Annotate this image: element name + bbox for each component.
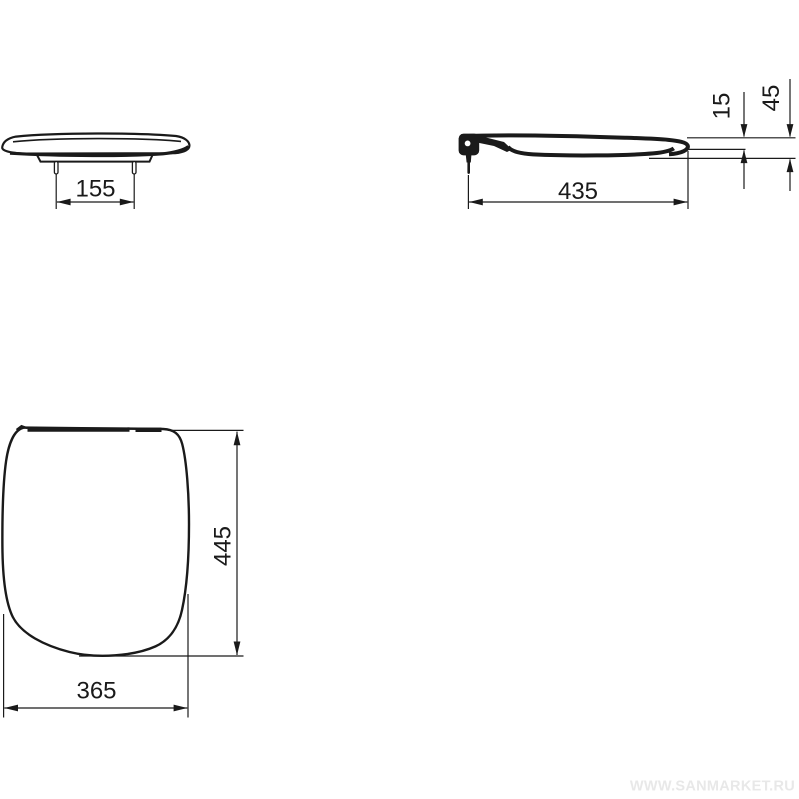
arrowhead	[741, 124, 748, 137]
fixing-bolt-right	[132, 162, 136, 175]
mounting-strip	[37, 155, 153, 162]
fixing-bolt-left	[54, 162, 58, 175]
hinge-pin-hole	[465, 141, 471, 147]
top-view: 445 365	[2, 426, 243, 718]
dimension-rear-profile-height: 15	[709, 92, 748, 189]
dimension-label-rear-profile-height: 15	[709, 93, 736, 120]
dimension-bolt-spacing: 155	[56, 174, 134, 209]
seat-outline	[2, 134, 189, 154]
hinge-wedge	[477, 136, 512, 153]
arrowhead	[57, 199, 71, 206]
dimension-label-seat-length: 445	[210, 526, 237, 566]
arrowhead	[120, 199, 134, 206]
seat-bottom-band	[508, 147, 674, 156]
dimension-label-total-profile-height: 45	[758, 85, 785, 112]
arrowhead	[741, 150, 748, 163]
front-view: 155	[2, 134, 189, 209]
arrowhead	[234, 642, 241, 656]
dimension-seat-depth: 435	[468, 151, 688, 209]
arrowhead	[674, 199, 688, 206]
dimension-total-profile-height: 45	[758, 79, 793, 191]
seat-plan-outline	[2, 428, 189, 656]
watermark-text: WWW.SANMARKET.RU	[630, 779, 795, 795]
arrowhead	[787, 124, 794, 137]
dimension-label-seat-depth: 435	[558, 178, 598, 205]
arrowhead	[787, 159, 794, 172]
hinge-bolt	[466, 155, 472, 174]
arrowhead	[469, 199, 483, 206]
drawing-canvas: 155 435 15	[0, 0, 799, 799]
dimension-label-bolt-spacing: 155	[75, 176, 115, 203]
side-view: 435 15 45	[459, 79, 796, 209]
arrowhead	[234, 432, 241, 446]
arrowhead	[4, 705, 18, 712]
arrowhead	[174, 705, 188, 712]
dimension-label-seat-width: 365	[76, 678, 116, 705]
technical-drawing: 155 435 15	[0, 0, 799, 799]
